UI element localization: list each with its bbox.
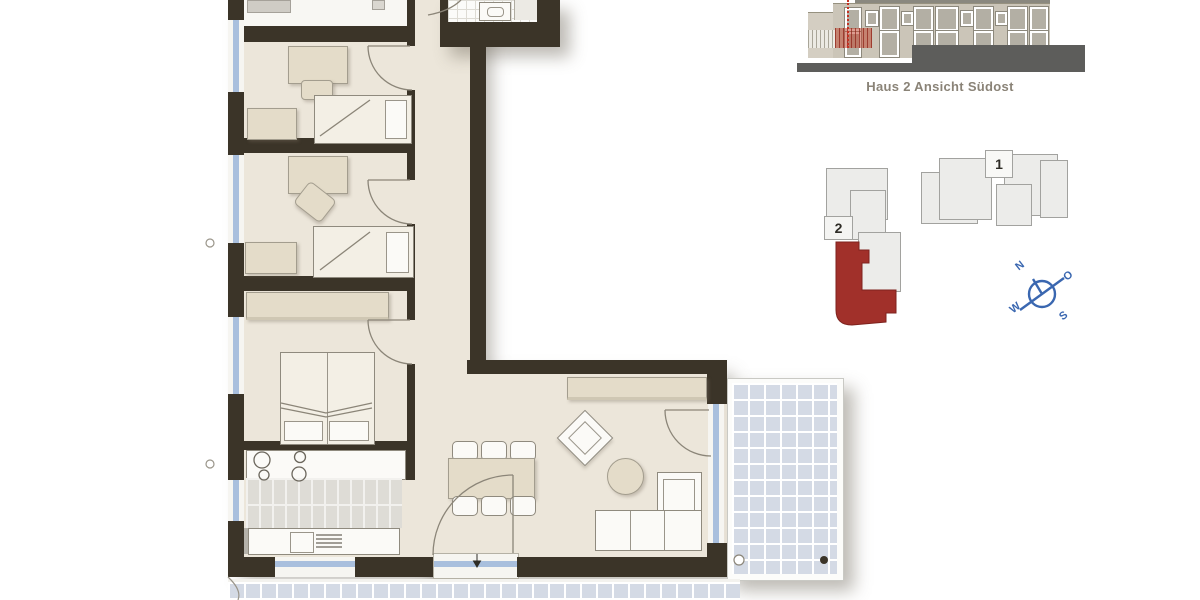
- building1-label: 1: [985, 150, 1013, 178]
- compass-rose: N O W S: [1008, 258, 1078, 328]
- apartment-floorplan: [0, 0, 860, 600]
- elevation-drawing: Haus 2 Ansicht Südost: [795, 0, 1085, 100]
- plan-linework: [0, 0, 860, 600]
- elevation-caption: Haus 2 Ansicht Südost: [795, 79, 1085, 94]
- section-line: [847, 0, 849, 48]
- entrance-arrow: [474, 554, 481, 567]
- floorplan-sheet: Haus 2 Ansicht Südost 2 1: [0, 0, 1200, 600]
- highlighted-balcony: [835, 28, 872, 48]
